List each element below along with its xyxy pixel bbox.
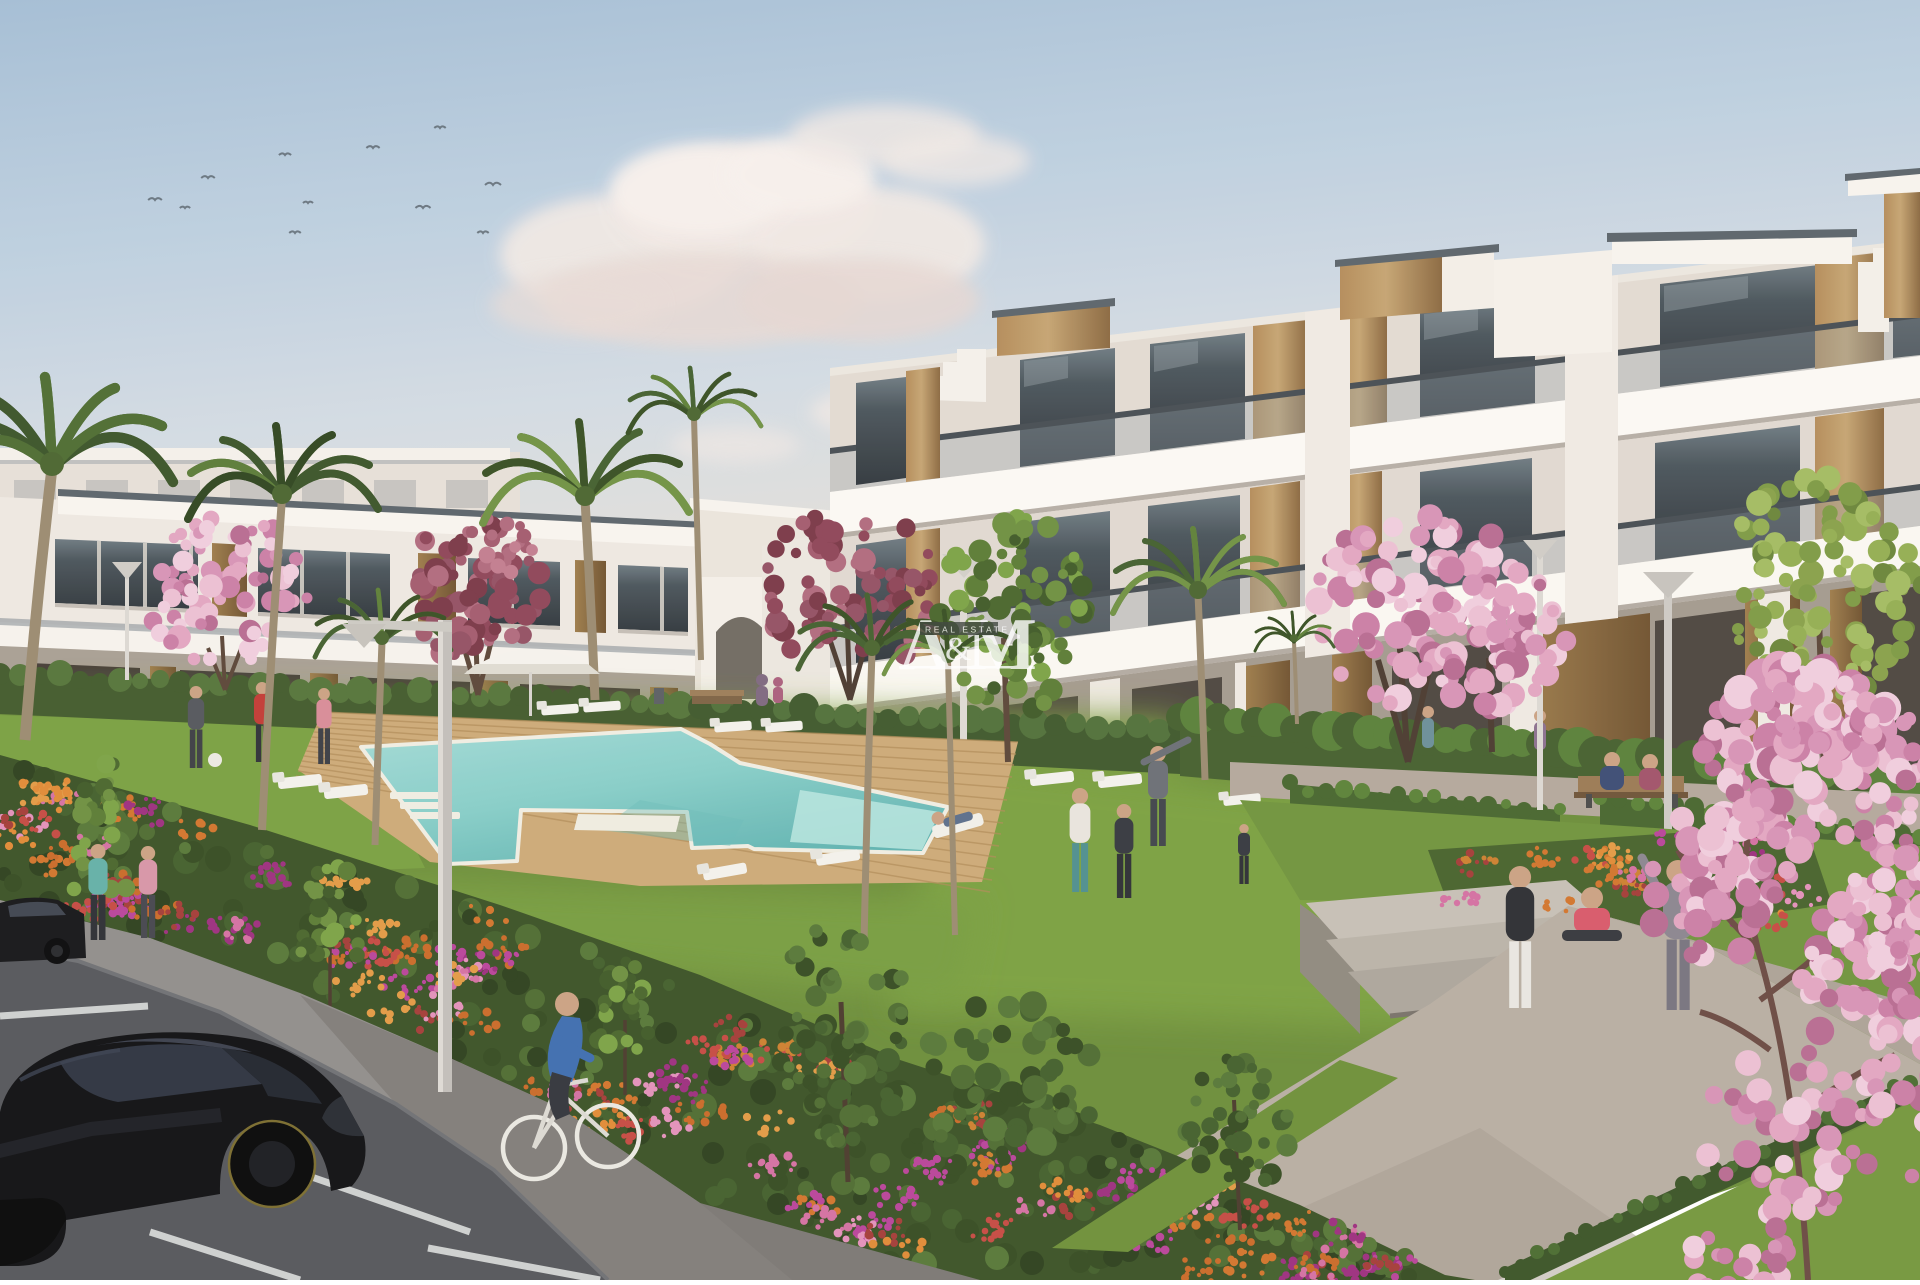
svg-text:M: M (967, 604, 1037, 686)
svg-text:REAL ESTATE: REAL ESTATE (925, 625, 1010, 635)
